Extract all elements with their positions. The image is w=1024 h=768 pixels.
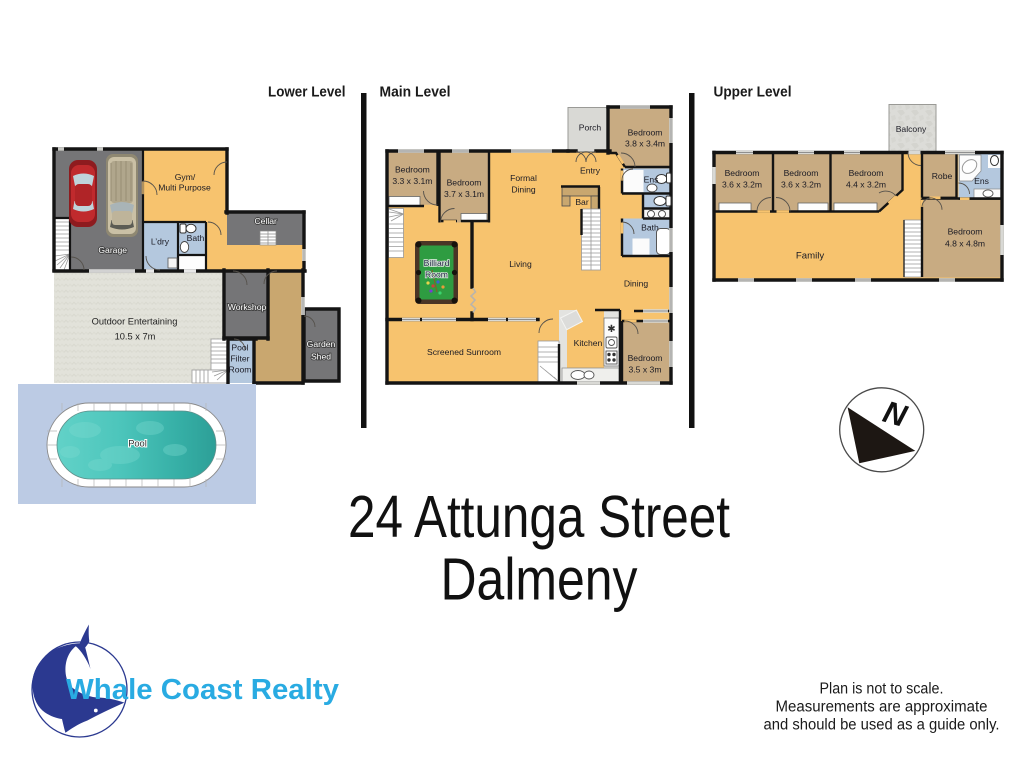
svg-text:Bar: Bar [575,197,589,207]
svg-text:Whale Coast Realty: Whale Coast Realty [66,674,339,706]
svg-text:4.8 x 4.8m: 4.8 x 4.8m [945,239,985,249]
svg-text:Garage: Garage [98,245,127,255]
svg-text:Ens: Ens [644,175,659,185]
svg-text:Measurements are approximate: Measurements are approximate [776,699,988,716]
svg-text:Plan is not to scale.: Plan is not to scale. [820,681,944,698]
svg-text:Robe: Robe [932,171,953,181]
svg-text:Bath: Bath [187,233,205,243]
svg-text:Formal: Formal [510,173,537,183]
svg-text:Billiard: Billiard [424,258,450,268]
svg-text:3.8 x 3.4m: 3.8 x 3.4m [625,139,665,149]
svg-text:3.7 x 3.1m: 3.7 x 3.1m [444,189,484,199]
svg-text:Bedroom: Bedroom [784,168,819,178]
svg-text:Bedroom: Bedroom [628,353,663,363]
svg-text:Shed: Shed [311,352,331,362]
svg-text:Pool: Pool [231,343,248,353]
svg-text:Screened Sunroom: Screened Sunroom [427,347,501,357]
svg-text:Entry: Entry [580,166,601,176]
svg-text:Balcony: Balcony [896,124,927,134]
svg-text:Dalmeny: Dalmeny [441,547,638,613]
svg-text:Room: Room [229,365,252,375]
svg-text:Dining: Dining [511,185,536,195]
svg-text:✱: ✱ [607,324,615,335]
svg-text:Lower Level: Lower Level [268,84,346,101]
svg-text:Bedroom: Bedroom [849,168,884,178]
svg-text:Cellar: Cellar [254,216,277,226]
svg-text:Bath: Bath [641,223,659,233]
svg-text:4.4 x 3.2m: 4.4 x 3.2m [846,180,886,190]
svg-text:Bedroom: Bedroom [725,168,760,178]
svg-text:L’dry: L’dry [151,237,170,247]
svg-text:Outdoor Entertaining: Outdoor Entertaining [92,317,178,327]
svg-text:3.3 x 3.1m: 3.3 x 3.1m [392,176,432,186]
svg-text:Filter: Filter [230,354,249,364]
svg-text:10.5 x 7m: 10.5 x 7m [115,332,156,342]
svg-text:Workshop: Workshop [228,302,267,312]
svg-text:Garden: Garden [307,339,336,349]
svg-text:Room: Room [425,270,448,280]
svg-text:Bedroom: Bedroom [395,165,430,175]
svg-text:Living: Living [509,259,532,269]
svg-text:Bedroom: Bedroom [447,178,482,188]
svg-text:Pool: Pool [128,439,147,449]
svg-text:Main Level: Main Level [380,84,451,101]
svg-text:Kitchen: Kitchen [574,338,603,348]
svg-text:Upper Level: Upper Level [714,84,792,101]
svg-text:3.6 x 3.2m: 3.6 x 3.2m [781,180,821,190]
svg-text:and should be used as a guide: and should be used as a guide only. [764,717,1000,734]
svg-text:Multi Purpose: Multi Purpose [158,183,211,193]
svg-text:Dining: Dining [624,279,649,289]
svg-text:Porch: Porch [579,123,602,133]
svg-text:Bedroom: Bedroom [628,128,663,138]
svg-text:Family: Family [796,251,824,262]
svg-text:Ens: Ens [974,176,989,186]
svg-text:Bedroom: Bedroom [948,227,983,237]
svg-text:3.5 x 3m: 3.5 x 3m [629,365,662,375]
svg-text:3.6 x 3.2m: 3.6 x 3.2m [722,180,762,190]
svg-text:24 Attunga Street: 24 Attunga Street [348,484,730,550]
svg-text:Gym/: Gym/ [175,172,196,182]
